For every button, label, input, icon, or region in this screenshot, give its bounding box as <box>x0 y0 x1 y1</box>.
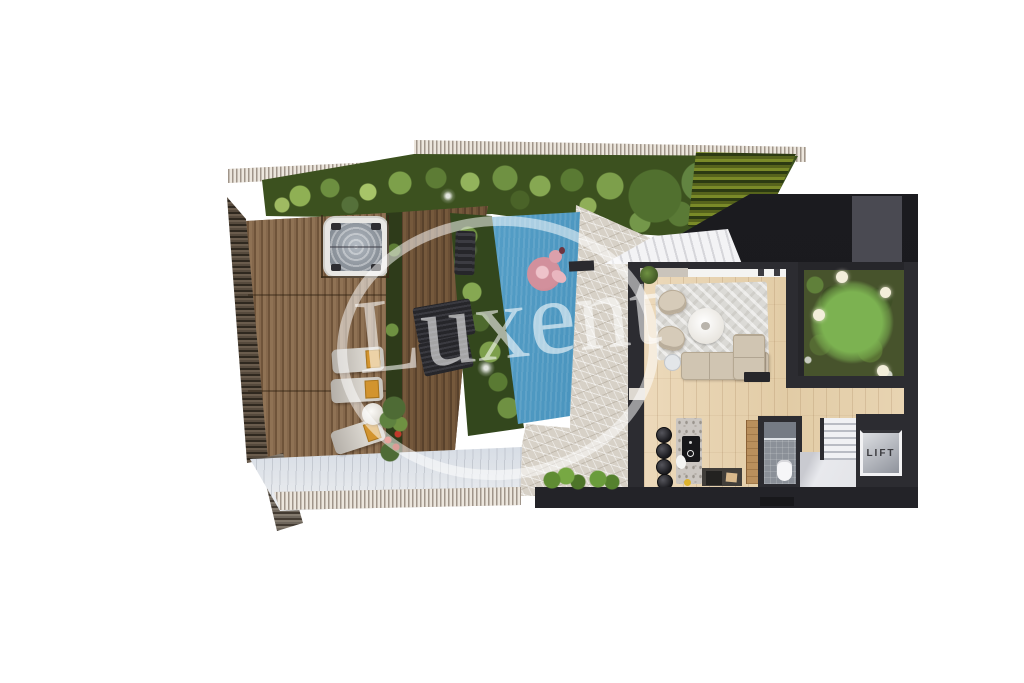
floor-plan-render: LIFT Luxent <box>0 0 1024 683</box>
